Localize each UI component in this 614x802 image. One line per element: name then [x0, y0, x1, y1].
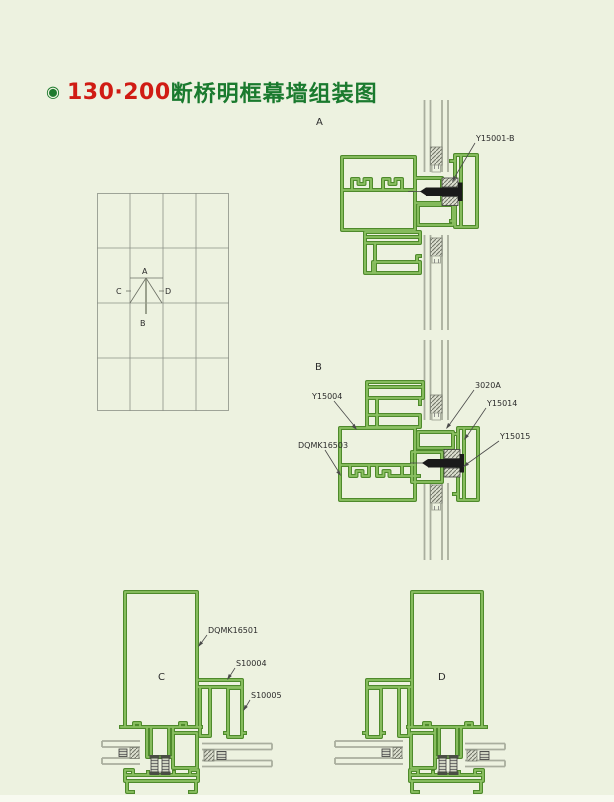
marker-label-c: C: [116, 287, 122, 296]
part-label-s10005: S10005: [243, 691, 282, 711]
glass-unit-upper: [425, 100, 449, 172]
glass-panel-left: [102, 741, 140, 764]
section-c-drawing: C DQMK16501 S10004 S10005: [88, 585, 293, 800]
grid-lines: [97, 193, 229, 411]
glass-panel-right: [202, 744, 272, 767]
section-d-letter: D: [438, 672, 446, 683]
svg-text:Y15001-B: Y15001-B: [475, 134, 514, 143]
assembly-diagram-page: ◉ 130·200 断桥明框幕墙组装图 A B C D: [0, 0, 614, 802]
detail-b-drawing: B Y15004 DQMK16503 3020A Y15014 Y15015: [292, 338, 537, 573]
elevation-grid-diagram: A B C D: [97, 193, 229, 411]
svg-text:DQMK16503: DQMK16503: [298, 441, 348, 450]
part-label-y15004: Y15004: [311, 392, 357, 430]
svg-text:Y15004: Y15004: [311, 392, 342, 401]
glass-panel-left: [335, 741, 403, 764]
svg-text:S10005: S10005: [251, 691, 282, 700]
part-label-s10004: S10004: [227, 659, 267, 680]
glass-unit-upper: [425, 340, 449, 420]
section-c-letter: C: [158, 672, 165, 683]
svg-text:3020A: 3020A: [475, 381, 501, 390]
title-code: 130·200: [67, 80, 171, 105]
glass-unit-lower: [425, 235, 449, 330]
marker-label-d: D: [165, 287, 171, 296]
aluminium-profiles: [364, 592, 486, 792]
glass-unit-lower: [425, 483, 449, 560]
bullet-icon: ◉: [46, 84, 60, 100]
part-label-y15015: Y15015: [463, 432, 530, 467]
marker-label-b: B: [140, 319, 146, 328]
marker-label-a: A: [142, 267, 148, 276]
part-label-dqmk16501: DQMK16501: [198, 626, 258, 647]
svg-text:DQMK16501: DQMK16501: [208, 626, 258, 635]
svg-text:S10004: S10004: [236, 659, 267, 668]
page-bottom-edge: [0, 795, 614, 802]
svg-text:Y15015: Y15015: [499, 432, 530, 441]
section-d-drawing: D: [328, 585, 518, 800]
aluminium-profiles: [340, 382, 478, 500]
svg-text:Y15014: Y15014: [486, 399, 517, 408]
detail-a-letter: A: [316, 117, 323, 128]
detail-a-drawing: A Y15001-B: [312, 83, 522, 333]
detail-b-letter: B: [315, 362, 322, 373]
aluminium-profiles: [342, 155, 477, 273]
aluminium-profiles: [121, 592, 245, 792]
glass-panel-right: [465, 744, 505, 767]
